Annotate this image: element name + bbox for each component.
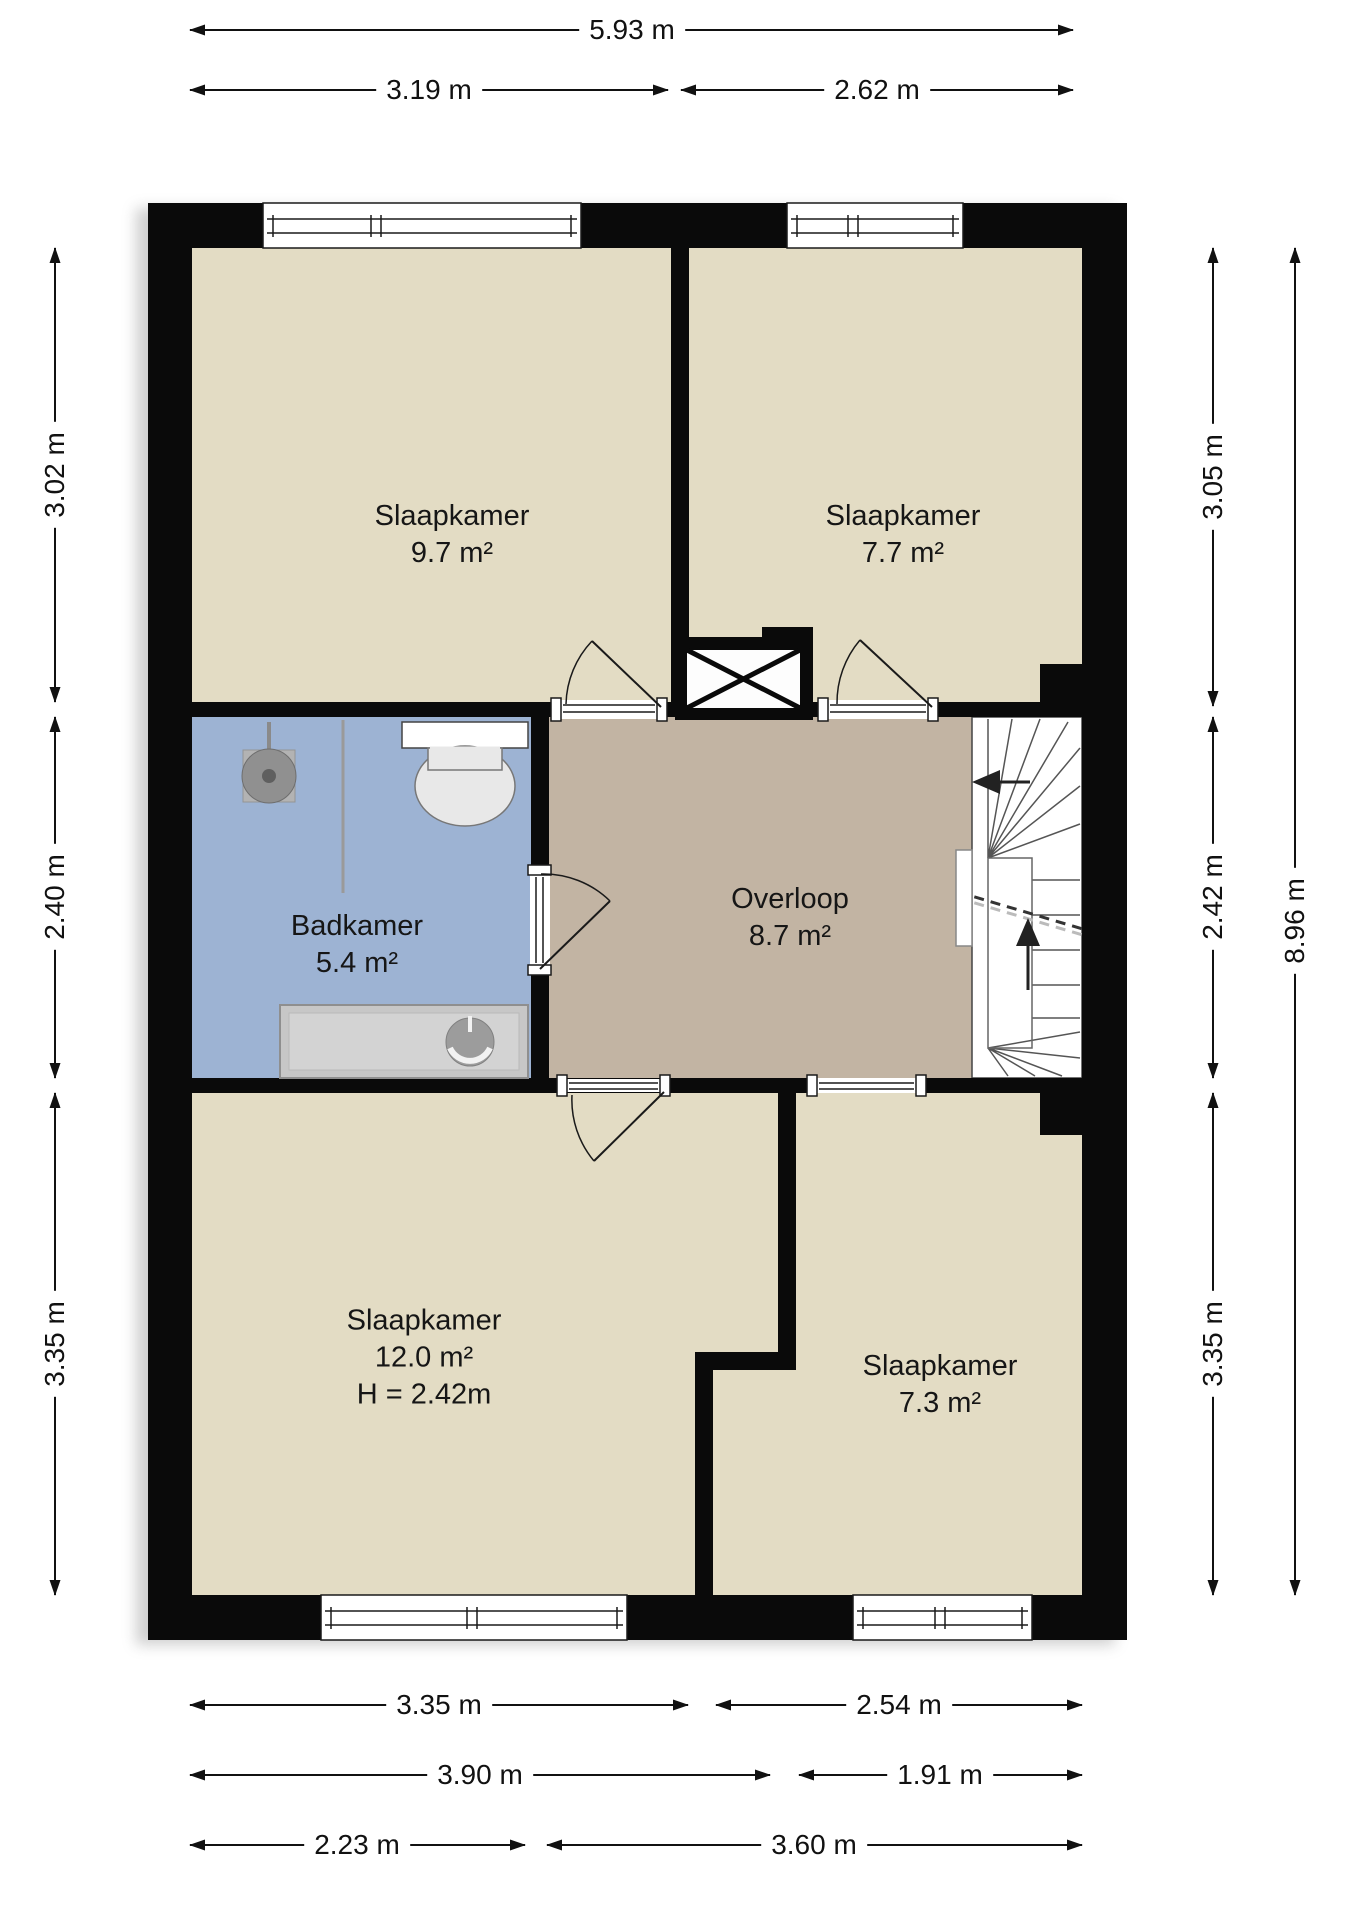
room-name: Overloop <box>731 881 849 918</box>
room-area: 8.7 m² <box>731 918 849 955</box>
dim-right-top: 3.05 m <box>1197 424 1229 530</box>
floorplan-canvas: Slaapkamer 9.7 m² Slaapkamer 7.7 m² Badk… <box>0 0 1358 1920</box>
room-name: Slaapkamer <box>826 498 981 535</box>
window-top-left <box>263 203 581 248</box>
room-name: Slaapkamer <box>347 1303 502 1340</box>
room-height: H = 2.42m <box>347 1377 502 1414</box>
room-label-slaapkamer-3: Slaapkamer 12.0 m² H = 2.42m <box>347 1303 502 1414</box>
room-label-badkamer: Badkamer 5.4 m² <box>291 908 423 982</box>
dim-left-middle: 2.40 m <box>39 844 71 950</box>
room-area: 7.7 m² <box>826 535 981 572</box>
window-bottom-left <box>321 1595 627 1640</box>
dim-right-middle: 2.42 m <box>1197 844 1229 950</box>
room-name: Badkamer <box>291 908 423 945</box>
dim-bottom-row2-left: 3.90 m <box>427 1759 533 1791</box>
dim-bottom-row1-right: 2.54 m <box>846 1689 952 1721</box>
room-area: 5.4 m² <box>291 945 423 982</box>
floorplan-drawing <box>0 0 1358 1920</box>
room-area: 12.0 m² <box>347 1340 502 1377</box>
window-bottom-right <box>853 1595 1032 1640</box>
window-top-right <box>787 203 963 248</box>
dim-right-total: 8.96 m <box>1279 868 1311 974</box>
shaft <box>675 627 813 720</box>
wall-notch-top <box>1040 664 1082 702</box>
room-label-slaapkamer-1: Slaapkamer 9.7 m² <box>375 498 530 572</box>
dim-top-right: 2.62 m <box>824 74 930 106</box>
floor-slaapkamer-1 <box>192 248 671 702</box>
dim-left-bottom: 3.35 m <box>39 1291 71 1397</box>
dim-top-left: 3.19 m <box>376 74 482 106</box>
room-label-overloop: Overloop 8.7 m² <box>731 881 849 955</box>
room-area: 9.7 m² <box>375 535 530 572</box>
dim-top-total: 5.93 m <box>579 14 685 46</box>
wall-notch-bottom <box>1040 1093 1082 1135</box>
dim-bottom-row2-right: 1.91 m <box>887 1759 993 1791</box>
room-label-slaapkamer-4: Slaapkamer 7.3 m² <box>863 1348 1018 1422</box>
room-name: Slaapkamer <box>375 498 530 535</box>
staircase <box>956 717 1086 1078</box>
dim-bottom-row3-left: 2.23 m <box>304 1829 410 1861</box>
dim-right-bottom: 3.35 m <box>1197 1291 1229 1397</box>
dim-bottom-row1-left: 3.35 m <box>386 1689 492 1721</box>
room-name: Slaapkamer <box>863 1348 1018 1385</box>
room-area: 7.3 m² <box>863 1385 1018 1422</box>
floor-slaapkamer-2 <box>689 248 1082 702</box>
bathtub <box>280 1005 528 1078</box>
dim-bottom-row3-right: 3.60 m <box>761 1829 867 1861</box>
dim-left-top: 3.02 m <box>39 422 71 528</box>
passage-slaapkamer-4 <box>807 1075 926 1096</box>
room-label-slaapkamer-2: Slaapkamer 7.7 m² <box>826 498 981 572</box>
